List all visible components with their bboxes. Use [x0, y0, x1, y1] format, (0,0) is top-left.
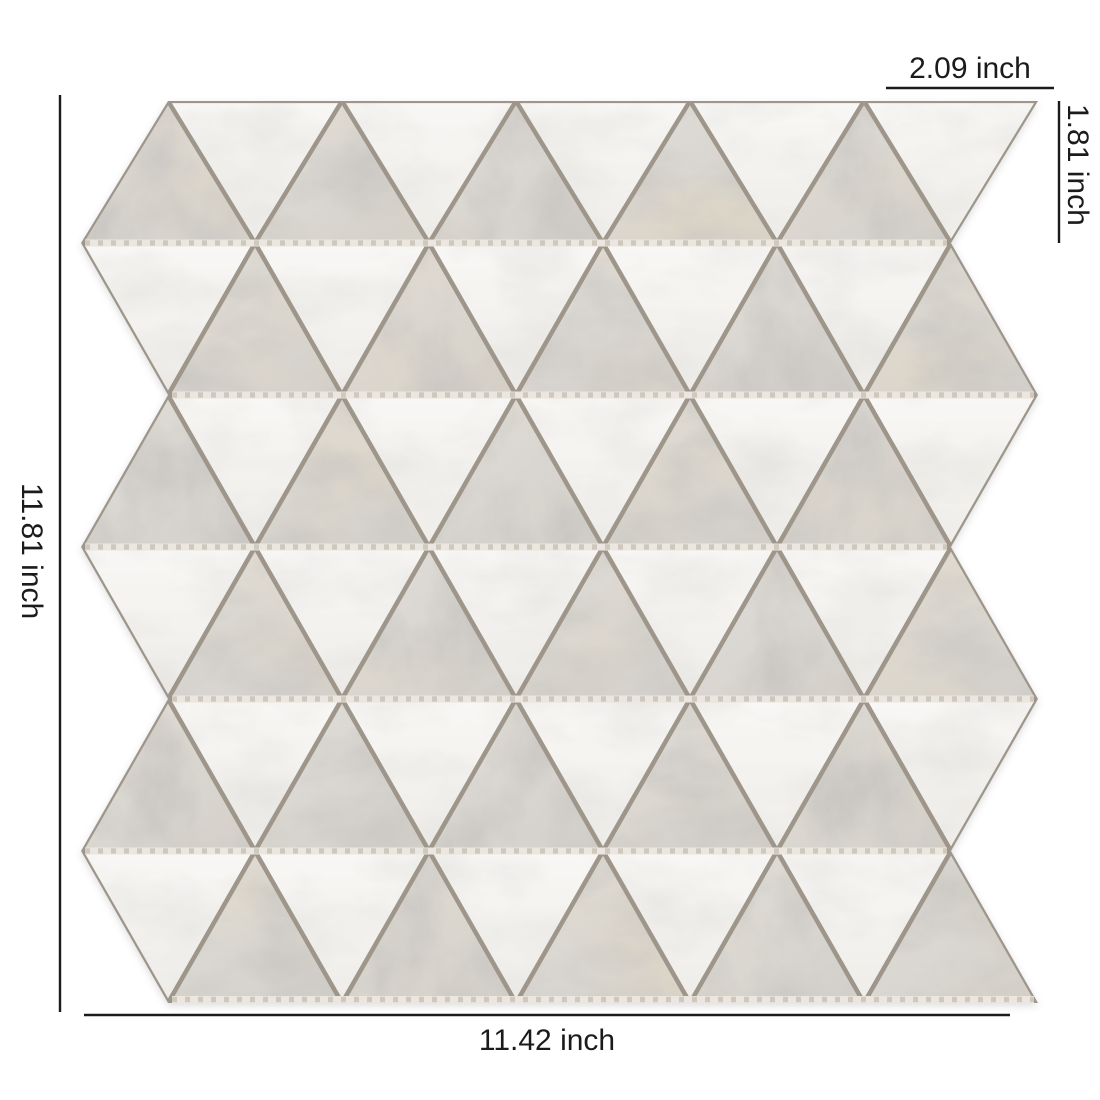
triangle-height-label: 1.81 inch	[1061, 104, 1094, 226]
sheet-height-label: 11.81 inch	[15, 483, 48, 619]
sheet-width-label: 11.42 inch	[479, 1024, 615, 1057]
mosaic-tile-figure: 2.09 inch 1.81 inch 11.81 inch 11.42 inc…	[0, 0, 1100, 1100]
product-dimension-figure: 2.09 inch 1.81 inch 11.81 inch 11.42 inc…	[0, 0, 1100, 1100]
triangle-base-label: 2.09 inch	[909, 52, 1031, 85]
mosaic-sheet	[81, 101, 1038, 1003]
